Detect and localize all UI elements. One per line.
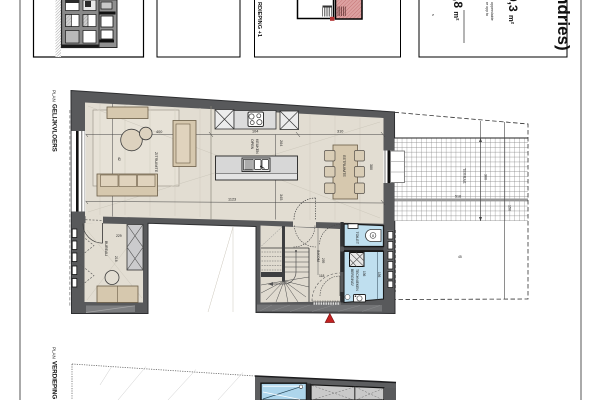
svg-text:229: 229 xyxy=(116,234,122,238)
svg-text:EETRUIMTE: EETRUIMTE xyxy=(342,155,346,177)
svg-text:104: 104 xyxy=(252,130,258,134)
svg-text:216: 216 xyxy=(114,256,118,262)
svg-text:re opp to: re opp to xyxy=(485,2,489,16)
svg-text:42: 42 xyxy=(117,157,121,161)
svg-text:380: 380 xyxy=(369,164,373,170)
svg-text:118: 118 xyxy=(319,274,325,278)
svg-text:PLAN: PLAN xyxy=(52,90,57,102)
svg-text:GELIJKVLOERS: GELIJKVLOERS xyxy=(51,104,58,152)
svg-text:310: 310 xyxy=(337,130,343,134)
svg-text:OPEN: OPEN xyxy=(250,139,254,150)
svg-text:PLAN: PLAN xyxy=(52,347,57,359)
svg-text:VERDIEPING +1: VERDIEPING +1 xyxy=(51,361,58,400)
svg-text:518: 518 xyxy=(455,195,461,199)
svg-text:RDIEPING +1: RDIEPING +1 xyxy=(256,2,262,37)
svg-text:8: 8 xyxy=(372,234,374,238)
svg-text:ZITRUIMTE: ZITRUIMTE xyxy=(154,152,158,173)
svg-text:136: 136 xyxy=(362,271,366,277)
svg-text:345: 345 xyxy=(279,194,283,200)
svg-text:1123: 1123 xyxy=(228,198,236,202)
svg-text:TERRAS: TERRAS xyxy=(462,168,466,184)
svg-text:300: 300 xyxy=(484,174,488,180)
svg-text:BERGING/: BERGING/ xyxy=(350,269,354,286)
svg-text:TOILET: TOILET xyxy=(355,232,359,245)
svg-text:KEUKEN: KEUKEN xyxy=(255,139,259,154)
svg-text:TECHNIEKEN: TECHNIEKEN xyxy=(355,269,359,291)
svg-text:295: 295 xyxy=(321,258,325,264)
svg-text:150: 150 xyxy=(508,205,512,211)
svg-text:264: 264 xyxy=(279,140,283,146)
svg-text:BUREAU: BUREAU xyxy=(104,241,108,256)
svg-text:45: 45 xyxy=(458,255,462,259)
svg-text:oppervlakte: oppervlakte xyxy=(490,2,494,21)
svg-text:400: 400 xyxy=(156,130,162,134)
svg-text:s: s xyxy=(431,14,435,16)
svg-text:ndries): ndries) xyxy=(554,0,573,51)
